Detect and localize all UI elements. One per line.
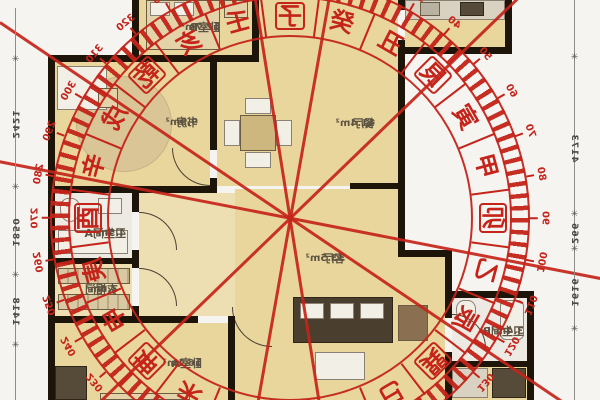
dim-marker-icon: ✳ <box>571 246 579 255</box>
compass-degree-label: 330 <box>151 0 175 7</box>
compass-tick-band <box>50 0 530 400</box>
dimension-value: 1616 <box>569 277 579 306</box>
compass-degree-label: 100 <box>534 251 548 273</box>
compass-degree-tick <box>473 58 480 64</box>
compass-degree-tick <box>444 28 450 35</box>
compass-degree-tick <box>526 174 534 177</box>
compass-degree-tick <box>100 58 107 64</box>
compass-degree-tick <box>46 259 54 262</box>
dim-marker-icon: ✳ <box>12 184 20 193</box>
compass-degree-label: 260 <box>32 251 46 273</box>
compass-degree-label: 90 <box>540 211 551 225</box>
compass-degree-tick <box>130 28 136 35</box>
compass-degree-tick <box>497 93 505 98</box>
dim-marker-icon: ✳ <box>12 56 20 65</box>
dim-marker-icon: ✳ <box>12 272 20 281</box>
compass-mountain-char: 卯 <box>479 203 507 233</box>
compass-degree-tick <box>57 132 65 136</box>
dimension-value: 1418 <box>10 296 20 325</box>
dim-marker-icon: ✳ <box>571 211 579 220</box>
compass-degree-tick <box>75 93 83 98</box>
compass-degree-tick <box>497 337 505 342</box>
compass-degree-label: 290 <box>42 119 59 142</box>
compass-degree-tick <box>75 337 83 342</box>
compass-degree-tick <box>515 132 523 136</box>
dimension-value: 2421 <box>10 109 20 138</box>
dimension-value: 266 <box>569 222 579 244</box>
compass-degree-label: 300 <box>59 79 79 103</box>
compass-degree-tick <box>165 3 170 11</box>
compass-degree-tick <box>515 299 523 303</box>
compass-degree-tick <box>42 217 50 219</box>
dim-marker-icon: ✳ <box>12 342 20 351</box>
compass-degree-tick <box>530 217 538 219</box>
compass-mountain-char: 酉 <box>74 203 102 233</box>
dim-marker-icon: ✳ <box>571 326 579 335</box>
compass-degree-label: 280 <box>32 162 46 184</box>
compass-degree-tick <box>473 372 480 378</box>
compass-degree-label: 80 <box>534 166 547 182</box>
dimension-value: 1850 <box>10 217 20 246</box>
dimension-value: 4173 <box>569 133 579 162</box>
compass-degree-label: 50 <box>477 45 494 63</box>
compass-degree-label: 250 <box>42 294 59 317</box>
compass-degree-label: 120 <box>501 334 521 358</box>
compass-degree-label: 320 <box>115 12 138 34</box>
compass-mountain-char: 子 <box>275 2 305 30</box>
compass-degree-tick <box>409 3 414 11</box>
fengshui-floorplan: 卧室B 12.7m² 书房 9.9m² 餐厅 11.4m² 卫生间A 4.5m²… <box>0 0 600 400</box>
compass-degree-label: 270 <box>30 208 41 229</box>
compass-degree-tick <box>526 259 534 262</box>
compass-degree-label: 60 <box>503 82 519 100</box>
compass-degree-tick <box>46 174 54 177</box>
dim-marker-icon: ✳ <box>571 54 579 63</box>
compass-degree-tick <box>100 372 107 378</box>
luopan-compass: 0102030405060708090100110120130140150160… <box>0 0 600 400</box>
compass-degree-label: 110 <box>521 294 538 317</box>
compass-degree-label: 240 <box>59 334 79 358</box>
compass-degree-label: 70 <box>522 122 537 139</box>
compass-degree-tick <box>57 299 65 303</box>
